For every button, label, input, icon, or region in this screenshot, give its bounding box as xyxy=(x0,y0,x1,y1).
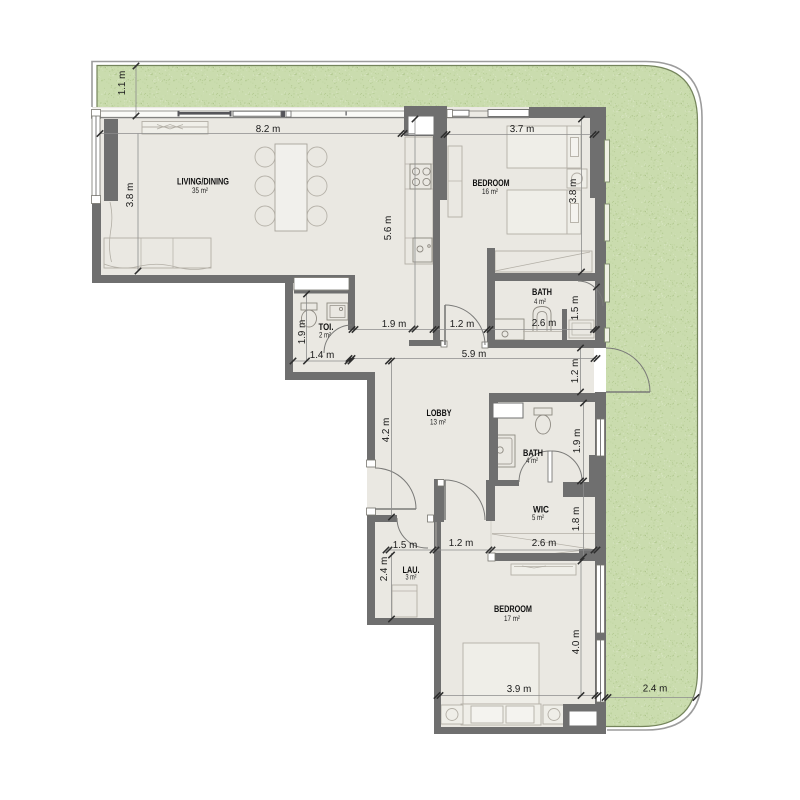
svg-text:3.8 m: 3.8 m xyxy=(568,179,579,204)
svg-text:5.9 m: 5.9 m xyxy=(462,349,487,360)
svg-text:4.2 m: 4.2 m xyxy=(381,418,392,443)
svg-text:1.9 m: 1.9 m xyxy=(297,320,308,345)
svg-text:16 m²: 16 m² xyxy=(482,187,498,196)
svg-text:1.9 m: 1.9 m xyxy=(382,319,407,330)
svg-text:2.6 m: 2.6 m xyxy=(532,538,557,549)
svg-text:1.9 m: 1.9 m xyxy=(572,429,583,454)
svg-text:4 m²: 4 m² xyxy=(534,297,546,306)
svg-text:13 m²: 13 m² xyxy=(430,418,446,427)
svg-text:3.8 m: 3.8 m xyxy=(125,183,136,208)
svg-text:1.2 m: 1.2 m xyxy=(450,319,475,330)
svg-text:1.5 m: 1.5 m xyxy=(393,540,418,551)
svg-text:1.8 m: 1.8 m xyxy=(571,507,582,532)
svg-text:1.5 m: 1.5 m xyxy=(570,296,581,321)
svg-text:4 m²: 4 m² xyxy=(526,456,538,465)
svg-text:1.1 m: 1.1 m xyxy=(117,71,128,96)
svg-text:3.7 m: 3.7 m xyxy=(510,124,535,135)
svg-text:1.2 m: 1.2 m xyxy=(449,538,474,549)
svg-text:5.6 m: 5.6 m xyxy=(383,216,394,241)
svg-text:17 m²: 17 m² xyxy=(504,614,520,623)
svg-text:3 m²: 3 m² xyxy=(406,573,417,582)
svg-text:2.6 m: 2.6 m xyxy=(532,318,557,329)
svg-text:1.2 m: 1.2 m xyxy=(570,359,581,384)
svg-text:35 m²: 35 m² xyxy=(192,186,208,195)
svg-text:8.2 m: 8.2 m xyxy=(256,124,281,135)
svg-text:4.0 m: 4.0 m xyxy=(571,630,582,655)
svg-text:5 m²: 5 m² xyxy=(532,513,544,522)
svg-text:3.9 m: 3.9 m xyxy=(507,684,532,695)
svg-text:1.4 m: 1.4 m xyxy=(310,350,335,361)
svg-text:2.4 m: 2.4 m xyxy=(379,557,390,582)
svg-text:2.4 m: 2.4 m xyxy=(643,684,668,695)
svg-text:2 m²: 2 m² xyxy=(319,331,331,340)
